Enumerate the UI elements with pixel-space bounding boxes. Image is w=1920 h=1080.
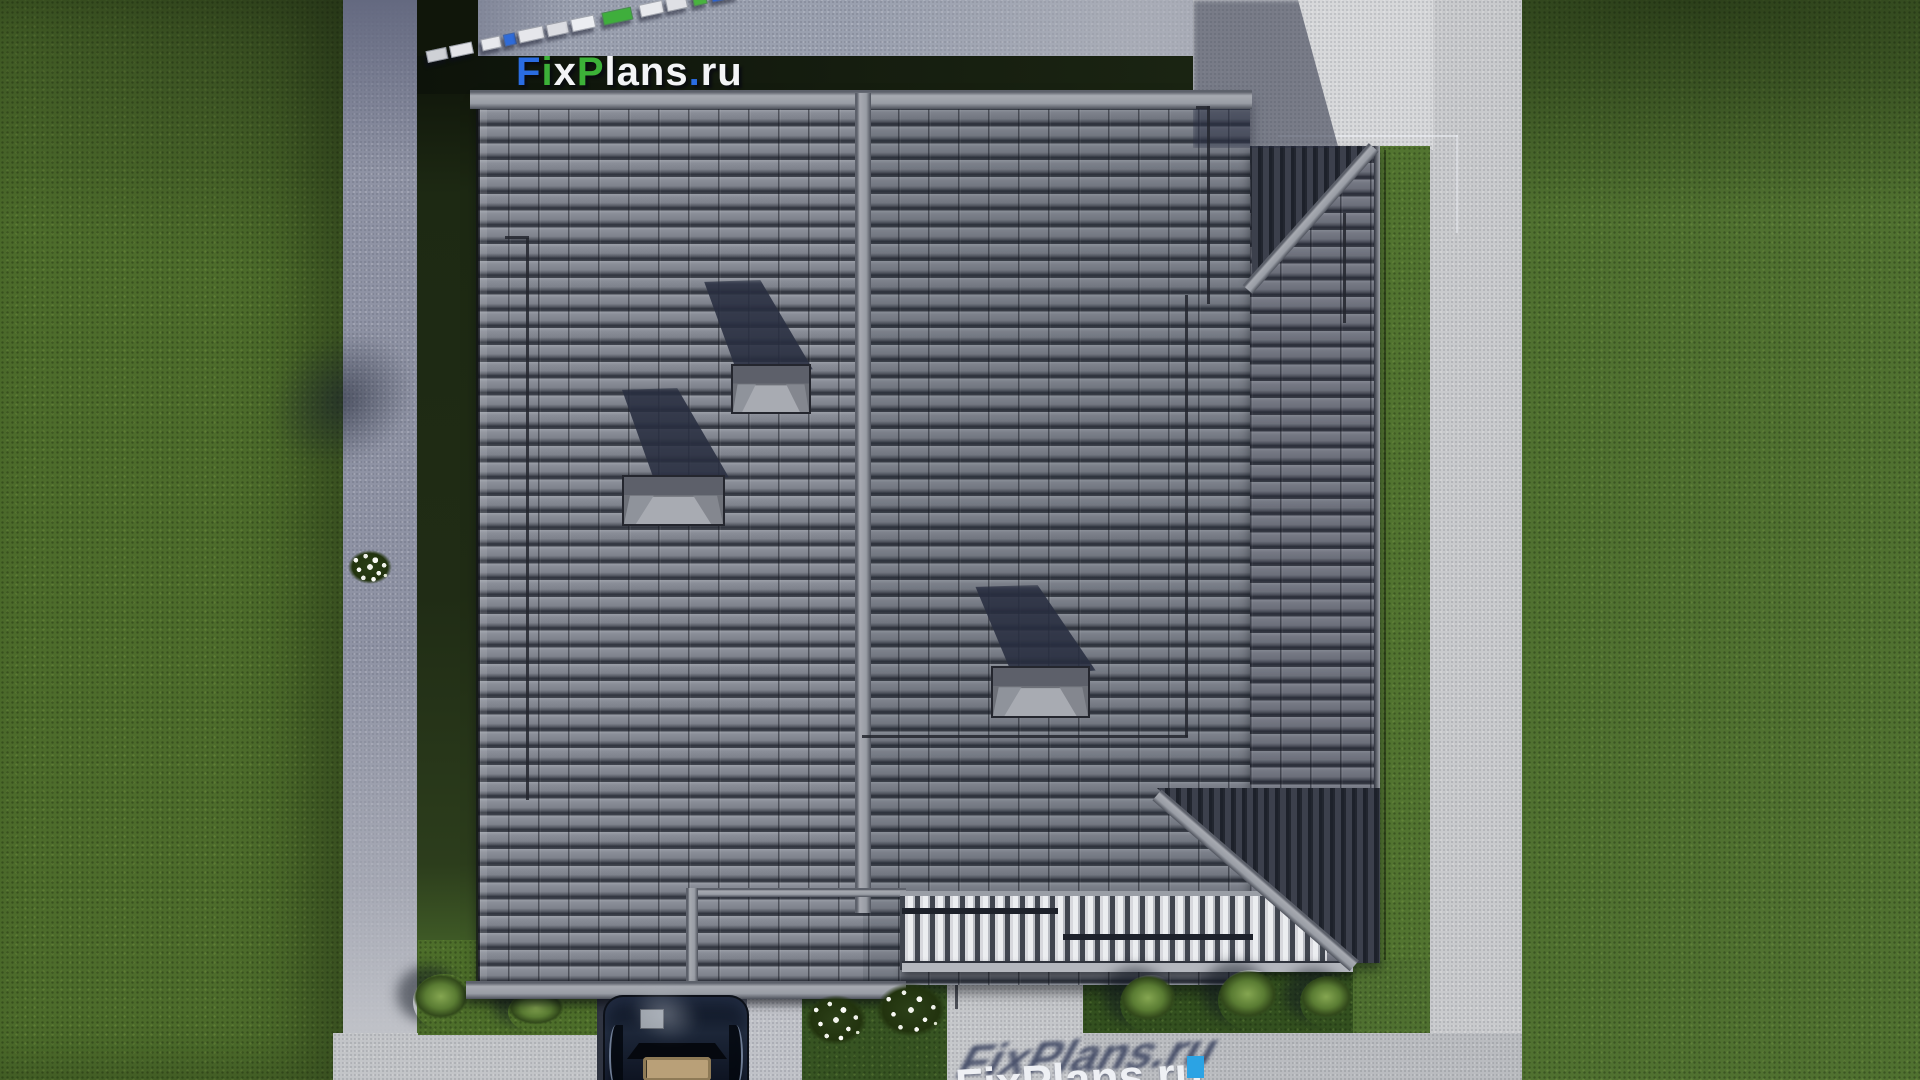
porch-frame-top (687, 888, 906, 897)
lawn-strip-right-line (1384, 150, 1386, 1030)
logo-letter: P (577, 50, 605, 94)
logo-letter: F (516, 50, 541, 94)
car-window-right (729, 1025, 743, 1080)
logo-letter: l (605, 50, 617, 94)
lawn-corner-br (1353, 960, 1430, 1035)
chimney (624, 477, 723, 524)
gutter-wing-vertical (1343, 213, 1346, 323)
hedge-strip-left (417, 0, 478, 1080)
ground-watermark-dot (1187, 1056, 1204, 1078)
logo-letter: s (665, 50, 688, 94)
roof-ridge-center (855, 93, 871, 913)
logo-letter: n (640, 50, 665, 94)
car-interior-seats (643, 1057, 711, 1080)
sidewalk-top-light (850, 0, 1193, 58)
scale-bar-segment (503, 32, 517, 46)
sidewalk-left-shade (343, 0, 418, 1080)
logo-letter: . (689, 50, 701, 94)
gutter-right-hook (1196, 106, 1210, 109)
gutter-right-horizontal (862, 735, 1188, 738)
car-window-left (609, 1025, 623, 1080)
flower-bush (805, 995, 867, 1045)
chimney (733, 366, 809, 412)
gutter-left-vertical (526, 238, 529, 800)
flower-bush (876, 983, 946, 1037)
pergola-roof (900, 893, 1327, 970)
roof-left-edge-light (480, 93, 487, 985)
logo-letter: x (554, 50, 577, 94)
gutter-right-v1 (1207, 106, 1210, 304)
walkway-beside-car (747, 985, 802, 1080)
plot-line-v (1456, 135, 1458, 233)
logo-letter: i (541, 50, 553, 94)
pergola-beam-right (1063, 934, 1253, 940)
brand-logo: FixPlans.ru (516, 50, 743, 95)
walkway-bottom-left (333, 1033, 603, 1080)
logo-letter: u (717, 50, 742, 94)
chimney (993, 668, 1088, 716)
porch-frame-side (686, 888, 698, 985)
roof-right-tint (863, 93, 1250, 985)
lawn-right-shade (1522, 0, 1920, 260)
bush-front (1120, 975, 1182, 1032)
pergola-trim-bottom (902, 961, 1353, 972)
aerial-render: FixPlans.ru FixPlans.ru FixPlans.ru (0, 0, 1920, 1080)
ground-watermark: FixPlans.ru FixPlans.ru (955, 1026, 1415, 1080)
flower-bush-path (348, 550, 392, 584)
logo-letter: r (701, 50, 718, 94)
gutter-right-v2 (1185, 295, 1188, 737)
sidewalk-right (1430, 0, 1522, 1080)
logo-letter: a (617, 50, 640, 94)
gutter-left-bracket (505, 236, 529, 239)
pergola-beam-left (902, 908, 1058, 914)
bush-front (1300, 976, 1358, 1028)
